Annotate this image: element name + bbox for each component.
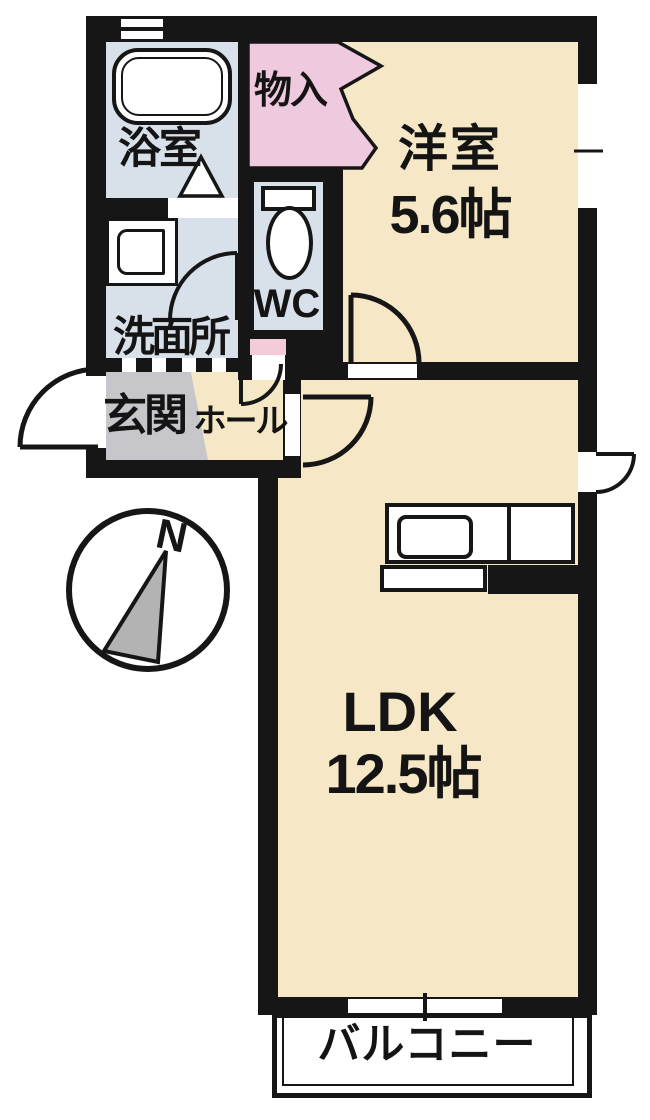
- wc-step: [250, 339, 286, 355]
- entrance-hall-label: ホール: [192, 404, 288, 437]
- kitchen-counter-divider: [507, 507, 511, 560]
- bath-window-upper-bar: [121, 19, 163, 27]
- storage-label: 物入: [246, 72, 334, 110]
- ldk-side-door-opening: [578, 452, 597, 492]
- western-room-door-opening: [348, 364, 417, 378]
- ldk-label: LDK: [300, 684, 500, 740]
- kitchen-sink-icon: [397, 515, 473, 559]
- wc-label: WC: [248, 284, 326, 324]
- compass-north-label: N: [152, 509, 191, 561]
- bath-door-opening: [168, 198, 238, 218]
- bathtub-inner-line: [121, 57, 223, 116]
- floor-plan: N 浴室 物入 洋室 5.6帖 WC 洗面所 玄関 ホール LDK 12.5帖 …: [0, 0, 650, 1120]
- ldk-size: 12.5帖: [288, 746, 518, 802]
- kitchen-lower-counter: [380, 565, 487, 592]
- western-room-label: 洋室: [350, 124, 550, 174]
- entrance-label: 玄関: [94, 394, 194, 438]
- wall-storage-bottom: [238, 166, 343, 182]
- wc-door-opening: [252, 355, 285, 380]
- wall-ldk-left: [258, 460, 278, 1015]
- bath-label: 浴室: [104, 128, 214, 171]
- washroom-label: 洗面所: [90, 316, 250, 358]
- bath-window-lower-bar: [121, 31, 163, 39]
- kitchen-partition-wall: [488, 565, 578, 594]
- compass-icon: N: [69, 509, 227, 669]
- washbasin-icon: [106, 218, 178, 286]
- western-room-window: [578, 84, 597, 208]
- side-door-arc: [596, 454, 634, 492]
- western-room-size: 5.6帖: [345, 188, 555, 242]
- balcony-sliding-window: [348, 999, 502, 1014]
- toilet-bowl-icon: [266, 206, 313, 280]
- bathtub-icon: [112, 48, 232, 125]
- balcony-label: バルコニー: [282, 1024, 572, 1067]
- wall-bath-stub: [106, 198, 168, 218]
- washroom-step-dashed-line: [106, 358, 238, 372]
- washbasin-bowl: [117, 229, 165, 275]
